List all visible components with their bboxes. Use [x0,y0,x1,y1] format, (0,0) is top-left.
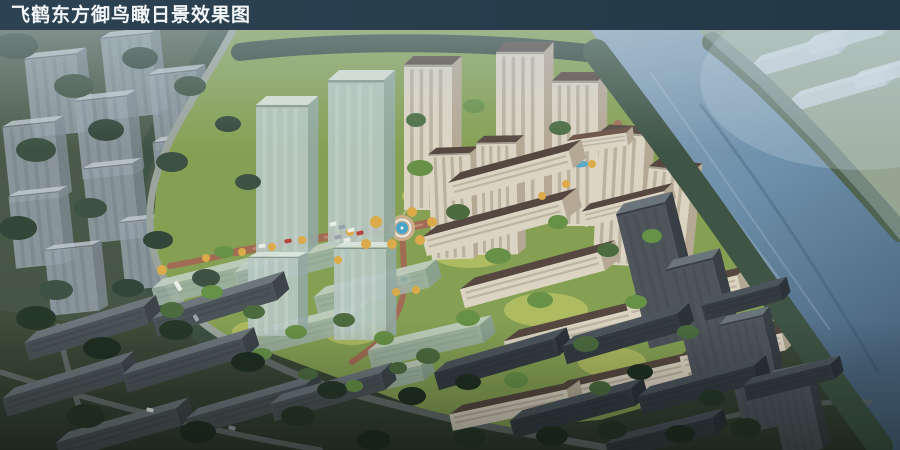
tree [625,295,647,309]
autumn-tree [562,180,570,188]
tree [112,279,144,297]
tree [597,243,619,257]
autumn-tree [268,243,276,251]
tree [201,285,223,299]
tree [235,174,261,190]
tree [446,204,470,220]
ghost-tower [44,240,109,316]
vignette-bottom [0,320,900,450]
image-title: 飞鹤东方御鸟瞰日景效果图 [0,0,251,30]
tree [73,198,107,218]
autumn-tree [415,235,425,245]
autumn-tree [361,239,371,249]
autumn-tree [387,239,397,249]
autumn-tree [538,192,546,200]
tree [243,305,265,319]
tree [548,215,568,229]
autumn-tree [238,248,246,256]
aerial-rendering [0,30,900,450]
autumn-tree [427,217,437,227]
autumn-tree [202,254,210,262]
tree [0,216,37,240]
autumn-tree [334,256,342,264]
tree [642,229,662,243]
autumn-tree [370,216,382,228]
tree [143,231,173,249]
autumn-tree [157,265,167,275]
autumn-tree [392,288,400,296]
tree [160,302,184,318]
tree [407,160,433,176]
screenshot-root: 飞鹤东方御鸟瞰日景效果图 [0,0,900,450]
autumn-tree [407,207,417,217]
tree [192,269,220,287]
fountain-jet [401,227,404,230]
tree [527,292,553,308]
autumn-tree [298,236,306,244]
autumn-tree [588,160,596,168]
autumn-tree [412,286,420,294]
tree [156,152,188,172]
tree [39,280,73,300]
tree [214,246,234,258]
title-bar: 飞鹤东方御鸟瞰日景效果图 [0,0,900,30]
tree [485,248,511,264]
